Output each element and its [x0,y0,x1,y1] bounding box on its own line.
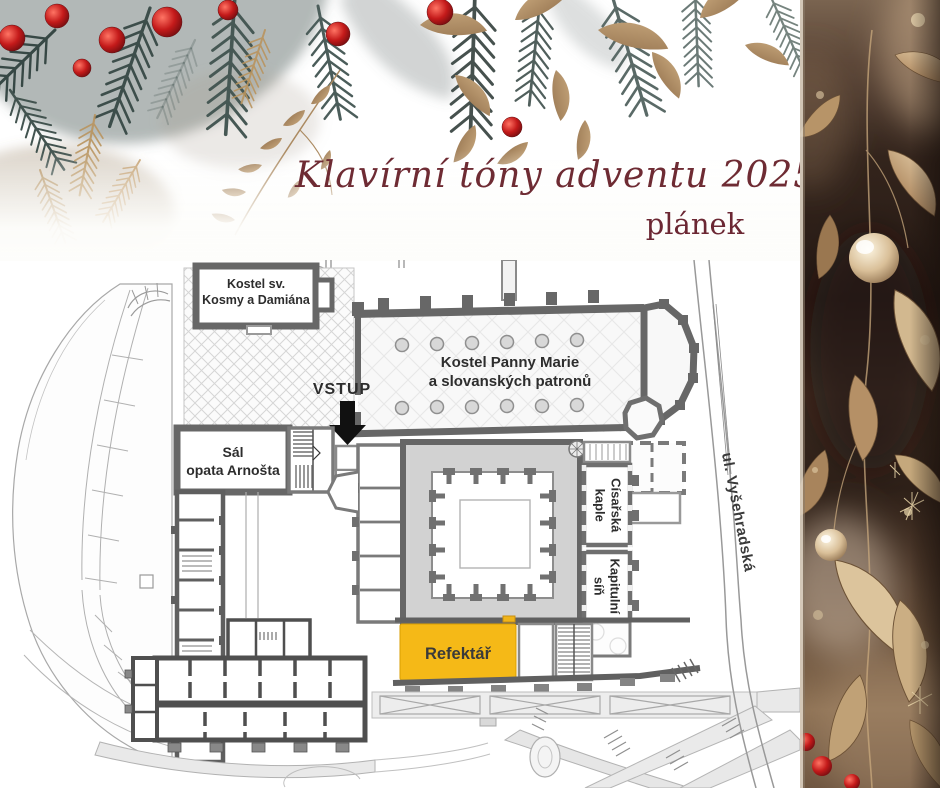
gallery-band [372,692,757,726]
room-label-kapitulni-sin: Kapitulní síň [590,546,623,626]
room-label-sal-opata: Sál opata Arnošta [174,444,292,479]
octagon-chapel [625,398,662,438]
subtitle-planek: plánek [620,207,770,241]
room-label-refektar: Refektář [397,644,519,665]
room-label-kostel-marie: Kostel Panny Marie a slovanských patronů [398,354,622,392]
gold-leaf-side-banner [800,0,940,788]
room-label-kostel-kosmy: Kostel sv. Kosmy a Damiána [186,277,326,308]
cloister [403,441,585,622]
room-label-cisarska-kaple: Císařská kaple [591,465,624,545]
entrance-label: VSTUP [306,380,378,400]
page-title: Klavírní tóny adventu 2025 [295,156,760,196]
cloister-garden [460,500,530,568]
poster-page: Klavírní tóny adventu 2025 plánek [0,0,940,788]
floor-plan-drawing [0,260,800,788]
staircase [556,624,592,680]
